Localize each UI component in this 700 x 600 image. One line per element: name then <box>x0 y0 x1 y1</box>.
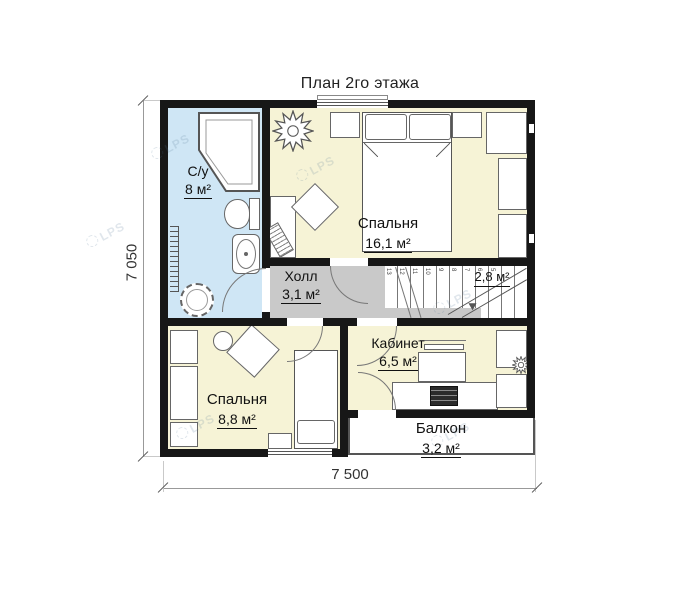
page-title: План 2го этажа <box>250 75 470 93</box>
shelf-1 <box>170 330 198 364</box>
nightstand-right <box>452 112 482 138</box>
stair-step-number: 8 <box>450 268 456 271</box>
computer-icon <box>430 386 458 406</box>
extension-line <box>535 420 536 492</box>
room-area: 6,5 м² <box>378 352 418 371</box>
wall-bedroom-large-bottom <box>262 258 535 266</box>
window-bottom <box>268 449 332 457</box>
office-cabinet-2 <box>496 374 527 408</box>
nightstand-left <box>330 112 360 138</box>
basket-icon <box>180 283 214 317</box>
room-name: Спальня <box>182 390 292 410</box>
room-name: Кабинет <box>352 334 444 352</box>
stair-step-number: 11 <box>411 268 417 274</box>
wall-joint <box>529 124 534 133</box>
extension-line <box>143 100 160 101</box>
room-area: 8 м² <box>184 180 212 199</box>
stair-step-number: 10 <box>424 268 430 275</box>
dimension-line-vertical <box>143 100 144 457</box>
window-top-sill <box>317 95 388 100</box>
plant-icon <box>272 110 314 152</box>
room-label-bedroom-large: Спальня 16,1 м² <box>328 214 448 254</box>
door-gap-office <box>357 318 397 326</box>
room-label-hall: Холл 3,1 м² <box>272 267 330 306</box>
wall-hall-bottom <box>160 318 535 326</box>
extension-line <box>143 456 160 457</box>
blanket-fold-right <box>436 143 450 157</box>
room-area: 16,1 м² <box>364 234 411 253</box>
room-name: Холл <box>272 267 330 285</box>
floor-plan-canvas: План 2го этажа <box>0 0 700 600</box>
room-name: С/у <box>167 162 229 180</box>
dimension-label-horizontal: 7 500 <box>300 466 400 483</box>
door-gap-bedroom-large <box>330 258 368 266</box>
stair-step-number: 12 <box>398 268 404 275</box>
room-area: 3,1 м² <box>281 285 321 304</box>
room-area: 2,8 м² <box>474 269 511 287</box>
radiator-icon <box>170 226 179 292</box>
room-area: 8,8 м² <box>217 410 257 429</box>
watermark: LPS <box>84 219 127 251</box>
wardrobe <box>486 112 527 154</box>
toilet-icon <box>224 196 260 232</box>
pillow-right <box>409 114 451 140</box>
room-label-office: Кабинет 6,5 м² <box>352 334 444 373</box>
stair-step-number: 13 <box>385 268 391 275</box>
watermark-flower-icon <box>84 233 100 249</box>
watermark-flower-icon <box>149 145 165 161</box>
pillow-single <box>297 420 335 444</box>
cabinet-right-1 <box>498 158 527 210</box>
cabinet-right-2 <box>498 214 527 258</box>
blanket-fold-left <box>364 143 378 157</box>
wall-joint <box>529 234 534 243</box>
room-label-bathroom: С/у 8 м² <box>167 162 229 201</box>
door-gap-balcony <box>358 410 396 418</box>
dimension-label-vertical: 7 050 <box>124 231 141 295</box>
room-name: Спальня <box>328 214 448 234</box>
window-top <box>317 100 388 108</box>
dimension-line-horizontal <box>163 488 537 489</box>
room-label-stair-landing: 2,8 м² <box>460 267 524 288</box>
stair-step-number: 9 <box>437 268 443 271</box>
wall-bedroom-office <box>340 326 348 449</box>
door-gap-bedroom-small <box>287 318 323 326</box>
nightstand-small <box>268 433 292 449</box>
pillow-left <box>365 114 407 140</box>
